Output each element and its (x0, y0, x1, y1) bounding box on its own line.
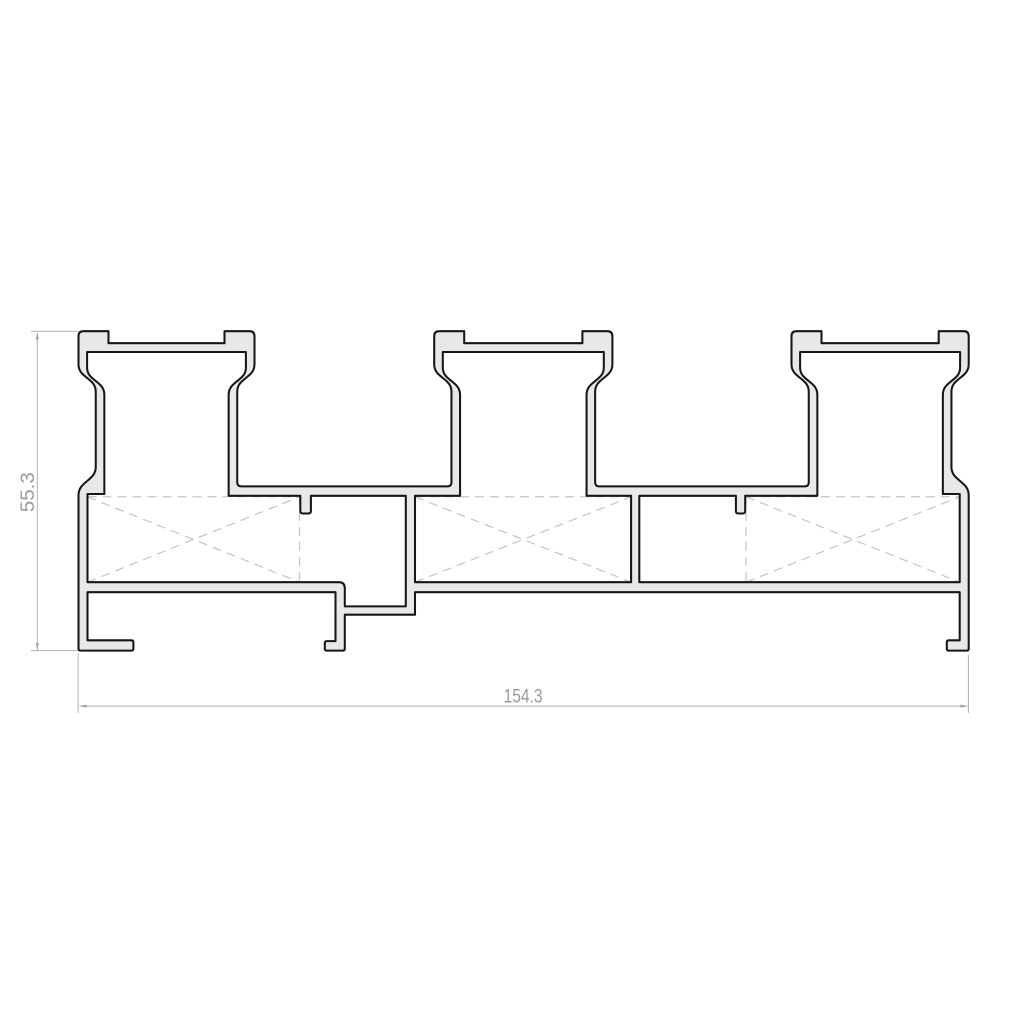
svg-text:154.3: 154.3 (504, 686, 543, 708)
svg-text:55.3: 55.3 (17, 472, 39, 512)
